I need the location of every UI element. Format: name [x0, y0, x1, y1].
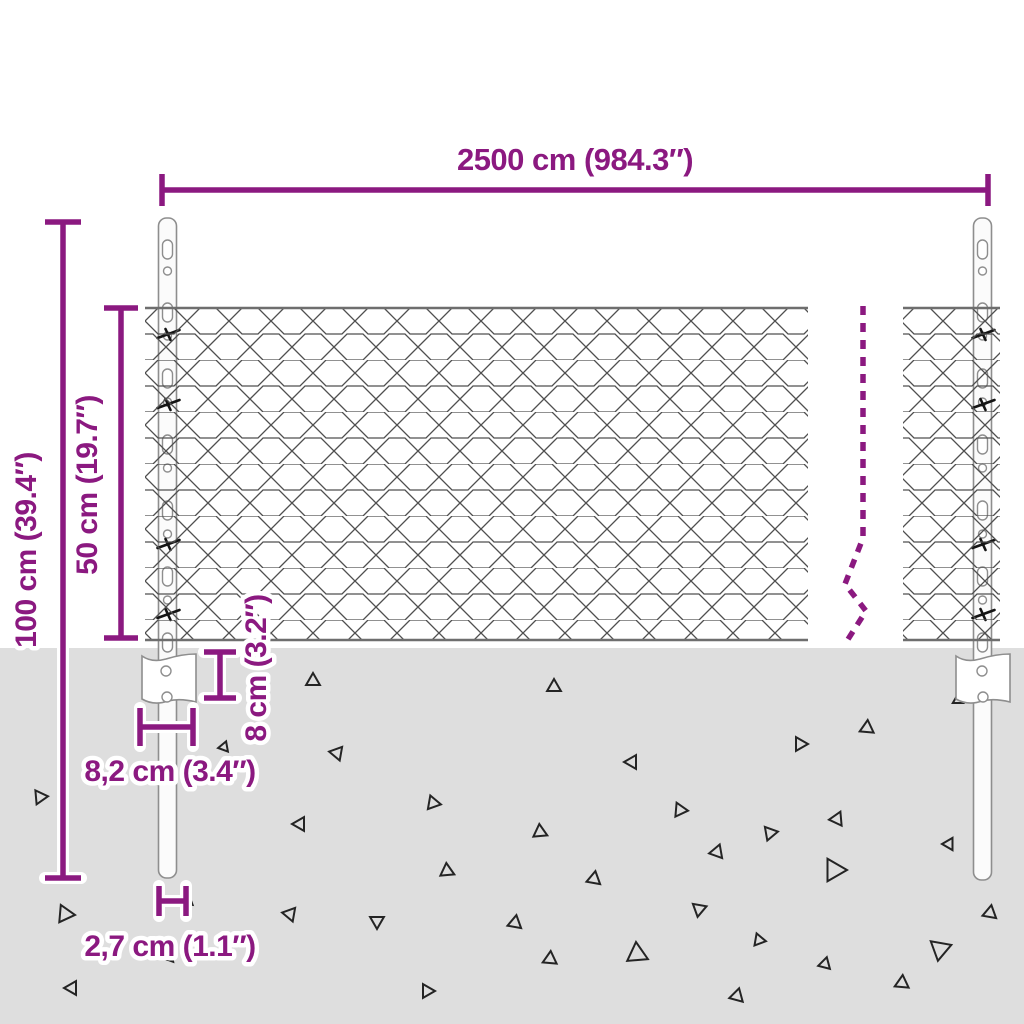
dimension-mesh-height: 50 cm (19.7″): [71, 308, 138, 638]
post-hole: [164, 267, 172, 275]
dimension-total-width-label: 2500 cm (984.3″): [457, 142, 693, 177]
diagram-svg: 2500 cm (984.3″) 100 cm (39.4″) 50 cm (1…: [0, 0, 1024, 1024]
post-slot: [978, 240, 988, 259]
left-anchor-plate: [142, 654, 196, 703]
dimension-total-height-label: 100 cm (39.4″): [10, 452, 43, 648]
ground: [0, 648, 1024, 1024]
post-hole: [979, 267, 987, 275]
mesh-panel-main: [145, 308, 808, 640]
dimension-mesh-height-label: 50 cm (19.7″): [71, 395, 104, 575]
dimension-post-width-label: 2,7 cm (1.1″): [84, 930, 255, 963]
dimension-anchor-width-label: 8,2 cm (3.4″): [84, 755, 255, 788]
dimension-anchor-depth-label: 8 cm (3.2″): [240, 594, 273, 741]
post-slot: [163, 240, 173, 259]
length-break-line: [845, 306, 866, 644]
mesh-panel-right: [903, 308, 1000, 640]
fence-dimension-diagram: 2500 cm (984.3″) 100 cm (39.4″) 50 cm (1…: [0, 0, 1024, 1024]
dimension-total-width: 2500 cm (984.3″): [162, 142, 988, 206]
right-anchor-plate: [956, 654, 1010, 703]
